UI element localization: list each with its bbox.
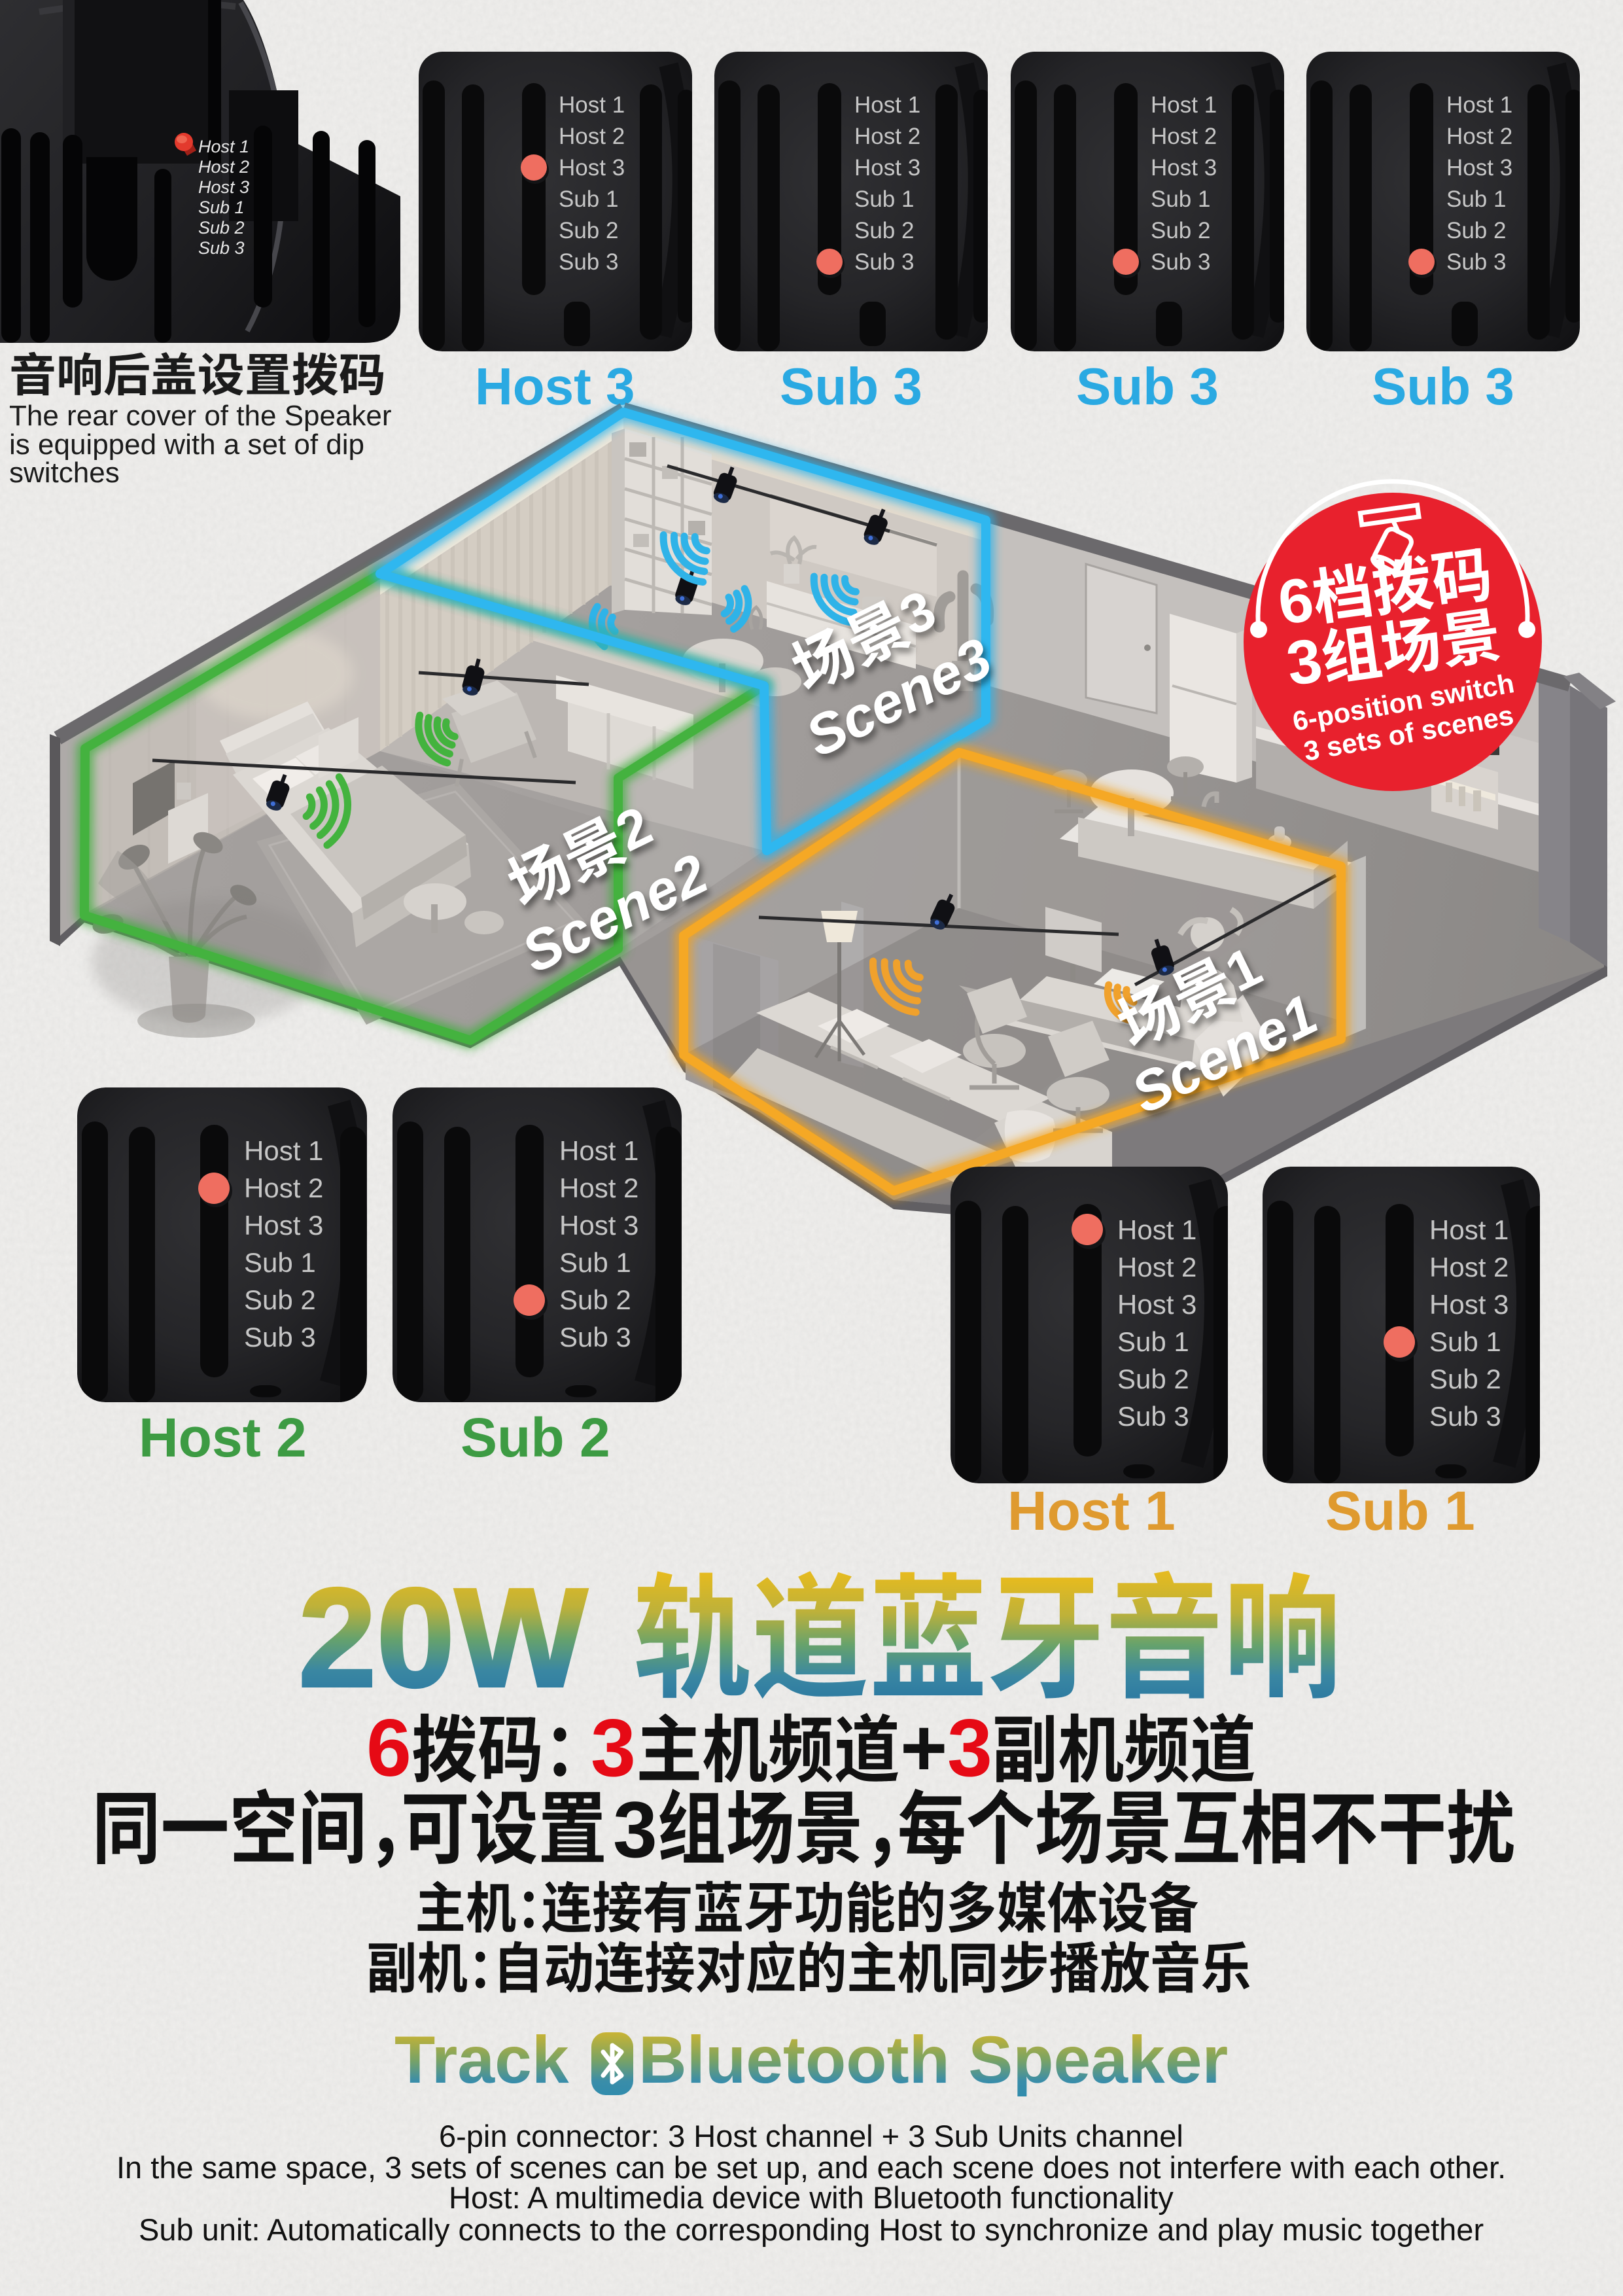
svg-text:Sub 3: Sub 3	[780, 357, 922, 415]
svg-text:Host 1: Host 1	[1429, 1214, 1509, 1245]
svg-text:3: 3	[613, 1785, 657, 1874]
svg-text:Host 1: Host 1	[244, 1135, 323, 1166]
svg-text:Sub 3: Sub 3	[1429, 1401, 1501, 1432]
svg-text:Host 1: Host 1	[1117, 1214, 1196, 1245]
svg-text:Host 3: Host 3	[559, 1210, 638, 1241]
svg-text:Sub 2: Sub 2	[1446, 218, 1506, 243]
svg-text:Host 2: Host 2	[1446, 124, 1512, 149]
svg-text:Host 3: Host 3	[475, 357, 635, 415]
svg-text:6: 6	[366, 1703, 411, 1793]
svg-text:Host 1: Host 1	[1151, 92, 1217, 118]
svg-text:Host 2: Host 2	[1429, 1252, 1509, 1282]
svg-text:Sub 1: Sub 1	[854, 186, 914, 212]
svg-text:Host 3: Host 3	[559, 155, 625, 181]
svg-text:Host 2: Host 2	[139, 1407, 307, 1468]
svg-text:Sub 1: Sub 1	[1429, 1326, 1501, 1357]
svg-text:Sub 2: Sub 2	[1429, 1364, 1501, 1394]
svg-text:The rear cover of the Speaker: The rear cover of the Speaker	[9, 400, 392, 432]
svg-text:Host 1: Host 1	[1007, 1480, 1176, 1542]
svg-text:Host 3: Host 3	[198, 177, 249, 197]
svg-text:6-pin connector: 3 Host channe: 6-pin connector: 3 Host channel + 3 Sub …	[439, 2119, 1183, 2153]
svg-text:Host: A multimedia device with: Host: A multimedia device with Bluetooth…	[449, 2180, 1174, 2215]
svg-text:Sub 3: Sub 3	[1151, 249, 1210, 275]
svg-text:Sub 2: Sub 2	[854, 218, 914, 243]
svg-text:3: 3	[947, 1703, 992, 1793]
svg-text:Sub 3: Sub 3	[1117, 1401, 1189, 1432]
svg-text:Host 3: Host 3	[1151, 155, 1217, 181]
svg-text:Sub 2: Sub 2	[198, 218, 245, 238]
svg-text:Sub 3: Sub 3	[244, 1322, 316, 1352]
svg-text:Sub unit: Automatically connec: Sub unit: Automatically connects to the …	[139, 2212, 1484, 2247]
svg-text:Bluetooth Speaker: Bluetooth Speaker	[638, 2022, 1228, 2097]
svg-text:Host 2: Host 2	[854, 124, 920, 149]
svg-text:Sub 3: Sub 3	[559, 249, 618, 275]
svg-text:Host 2: Host 2	[244, 1173, 323, 1203]
svg-text:Host 2: Host 2	[198, 157, 249, 177]
svg-text:Sub 1: Sub 1	[559, 186, 618, 212]
svg-text:Sub 1: Sub 1	[198, 198, 245, 217]
svg-text:3: 3	[591, 1703, 636, 1793]
svg-text:Sub 1: Sub 1	[1117, 1326, 1189, 1357]
svg-text:Host 2: Host 2	[1117, 1252, 1196, 1282]
svg-text:Host 1: Host 1	[1446, 92, 1512, 118]
svg-text:Sub 3: Sub 3	[854, 249, 914, 275]
svg-text:Host 1: Host 1	[559, 1135, 638, 1166]
svg-text:Sub 3: Sub 3	[559, 1322, 631, 1352]
svg-text:Host 3: Host 3	[854, 155, 920, 181]
svg-text:Host 2: Host 2	[1151, 124, 1217, 149]
svg-text:+: +	[900, 1703, 947, 1793]
svg-text:Sub 2: Sub 2	[244, 1284, 316, 1315]
svg-text:Sub 3: Sub 3	[1446, 249, 1506, 275]
svg-text:Sub 3: Sub 3	[1076, 357, 1219, 415]
svg-text:Host 3: Host 3	[1429, 1289, 1509, 1320]
svg-text:Sub 2: Sub 2	[1117, 1364, 1189, 1394]
svg-text:Host 3: Host 3	[1446, 155, 1512, 181]
svg-text:Sub 3: Sub 3	[198, 238, 245, 258]
svg-text:Host 3: Host 3	[244, 1210, 323, 1241]
svg-text:20W: 20W	[298, 1559, 587, 1716]
svg-text:switches: switches	[9, 457, 120, 489]
svg-text:Sub 1: Sub 1	[559, 1247, 631, 1278]
svg-text:Host 1: Host 1	[854, 92, 920, 118]
svg-text:Track: Track	[394, 2022, 569, 2097]
svg-text:Host 3: Host 3	[1117, 1289, 1196, 1320]
svg-text:Host 1: Host 1	[559, 92, 625, 118]
svg-text:Host 2: Host 2	[559, 124, 625, 149]
svg-text:Sub 2: Sub 2	[559, 218, 618, 243]
svg-text:is equipped with a set of dip: is equipped with a set of dip	[9, 429, 364, 461]
svg-text:Sub 2: Sub 2	[461, 1407, 610, 1468]
svg-text:Sub 2: Sub 2	[1151, 218, 1210, 243]
svg-text:Host 1: Host 1	[198, 137, 249, 156]
svg-text:Sub 3: Sub 3	[1372, 357, 1514, 415]
svg-text:Sub 1: Sub 1	[1446, 186, 1506, 212]
svg-text:Sub 1: Sub 1	[1151, 186, 1210, 212]
svg-text:Host 2: Host 2	[559, 1173, 638, 1203]
svg-text:Sub 1: Sub 1	[244, 1247, 316, 1278]
svg-text:Sub 1: Sub 1	[1325, 1480, 1475, 1542]
svg-text:Sub 2: Sub 2	[559, 1284, 631, 1315]
